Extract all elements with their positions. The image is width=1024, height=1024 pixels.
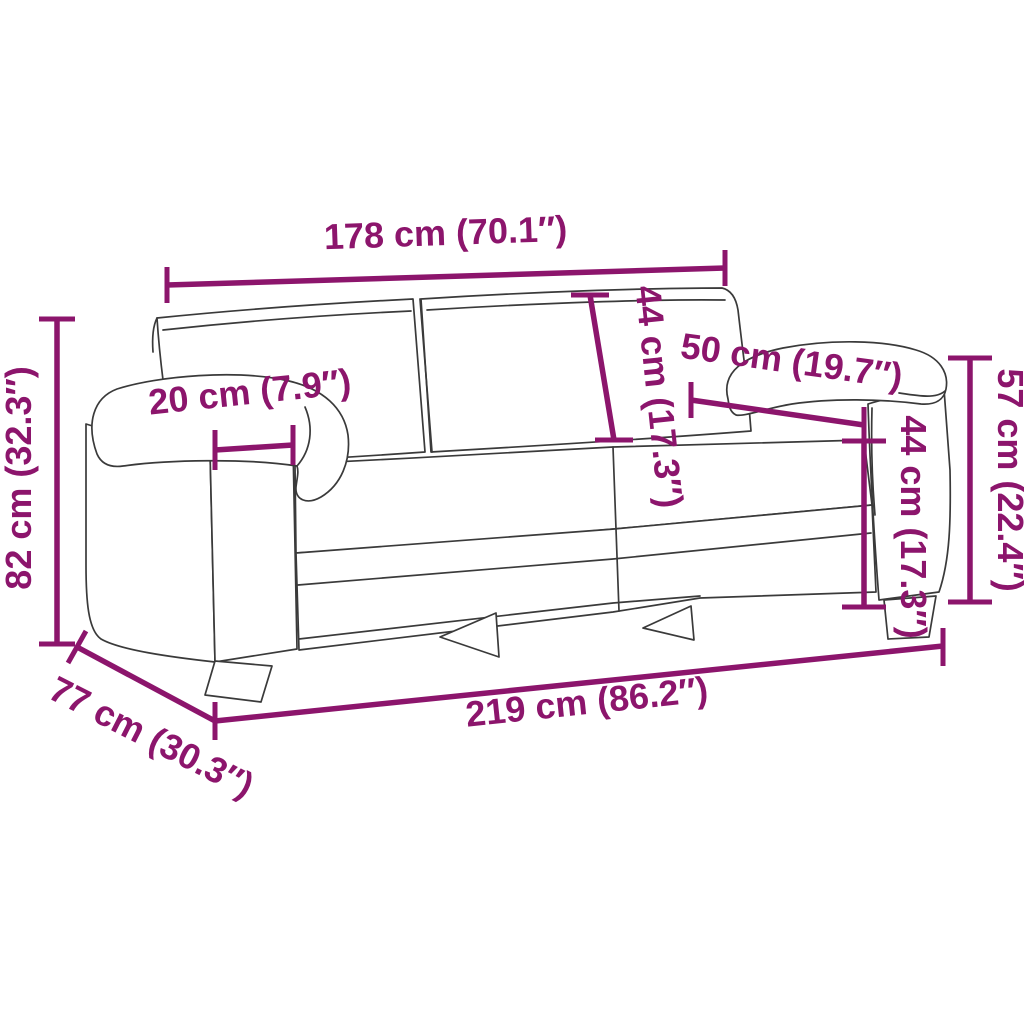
dimension-line bbox=[167, 268, 725, 285]
dimension-label: 219 cm (86.2″) bbox=[464, 668, 710, 734]
dimension-label: 178 cm (70.1″) bbox=[323, 208, 568, 257]
sofa-dimension-diagram: 178 cm (70.1″) 82 cm (32.3″) 20 cm (7.9″… bbox=[0, 0, 1024, 1024]
dimension-label: 82 cm (32.3″) bbox=[0, 366, 39, 589]
dimension-label: 44 cm (17.3″) bbox=[893, 415, 934, 638]
dimension-overall-height: 82 cm (32.3″) bbox=[0, 319, 75, 644]
left-armrest-front bbox=[210, 445, 297, 662]
back-cushion-right bbox=[421, 288, 751, 452]
diagram-canvas: 178 cm (70.1″) 82 cm (32.3″) 20 cm (7.9″… bbox=[0, 0, 1024, 1024]
back-cushion-left-edge-piping bbox=[153, 318, 157, 352]
tick bbox=[68, 631, 86, 663]
left-armrest-leg bbox=[205, 661, 272, 702]
dimension-label: 57 cm (22.4″) bbox=[990, 368, 1024, 591]
sled-leg-right bbox=[643, 606, 694, 640]
dimension-side-height: 57 cm (22.4″) bbox=[948, 358, 1024, 602]
